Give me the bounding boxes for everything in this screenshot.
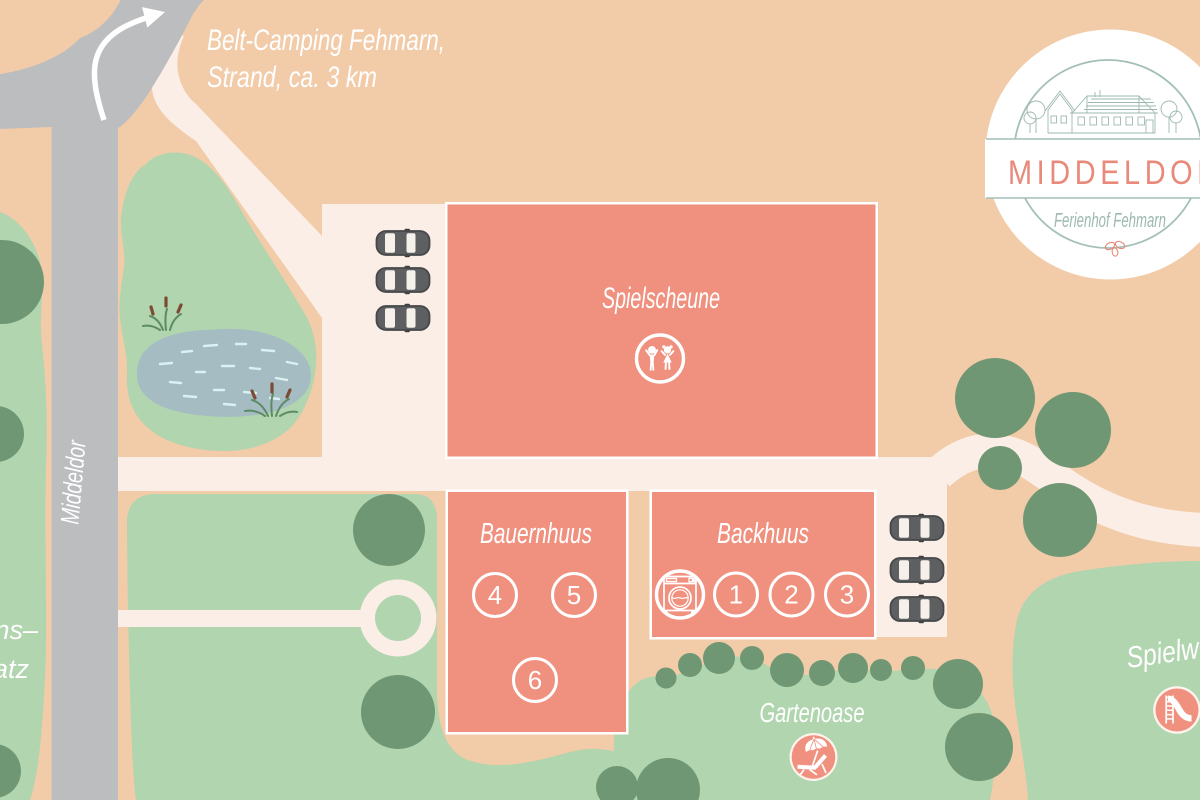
svg-text:Spielscheune: Spielscheune — [602, 282, 720, 315]
svg-text:Bauernhuus: Bauernhuus — [480, 518, 592, 550]
svg-text:atz: atz — [0, 654, 29, 684]
svg-text:2: 2 — [784, 580, 798, 610]
svg-text:6: 6 — [528, 665, 542, 695]
svg-text:Gartenoase: Gartenoase — [760, 697, 865, 728]
svg-text:ons–: ons– — [0, 615, 39, 645]
svg-text:MIDDELDORF: MIDDELDORF — [1008, 153, 1200, 192]
svg-text:Backhuus: Backhuus — [717, 518, 809, 550]
svg-text:3: 3 — [840, 580, 854, 610]
svg-text:Ferienhof Fehmarn: Ferienhof Fehmarn — [1054, 210, 1166, 232]
svg-text:4: 4 — [488, 580, 502, 610]
svg-text:1: 1 — [729, 580, 743, 610]
svg-text:Strand, ca. 3 km: Strand, ca. 3 km — [207, 61, 377, 94]
svg-text:Belt-Camping Fehmarn,: Belt-Camping Fehmarn, — [207, 24, 445, 57]
svg-text:5: 5 — [567, 580, 581, 610]
